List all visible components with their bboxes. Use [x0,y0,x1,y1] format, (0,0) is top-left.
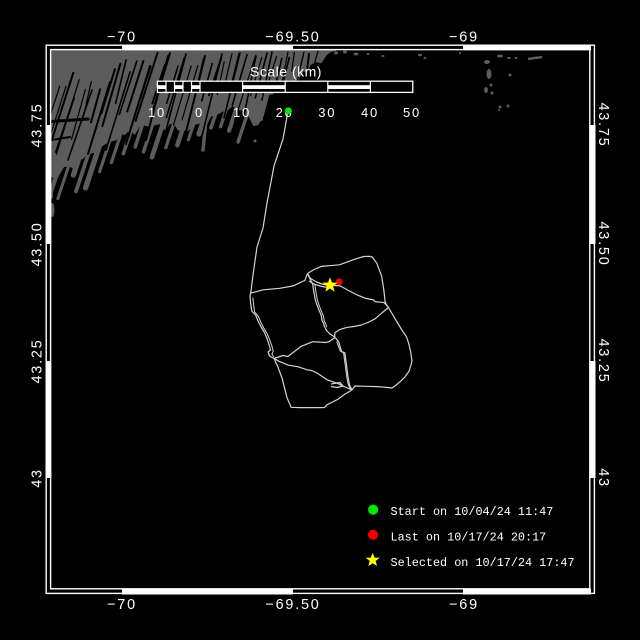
svg-text:10: 10 [233,105,251,120]
svg-text:30: 30 [318,105,336,120]
svg-text:Scale (km): Scale (km) [250,64,322,80]
svg-text:43.50: 43.50 [595,221,611,266]
svg-text:0: 0 [195,105,204,120]
svg-text:−70: −70 [107,30,137,46]
svg-text:43.75: 43.75 [595,102,611,147]
svg-text:Selected on 10/17/24 17:47: Selected on 10/17/24 17:47 [391,556,575,570]
svg-text:50: 50 [403,105,421,120]
svg-text:43.75: 43.75 [30,102,46,147]
svg-text:40: 40 [361,105,379,120]
svg-text:43.50: 43.50 [30,221,46,266]
svg-text:43: 43 [595,468,611,488]
svg-text:−69: −69 [449,30,479,46]
svg-text:43.25: 43.25 [595,338,611,383]
svg-text:10: 10 [148,105,166,120]
svg-text:43: 43 [30,468,46,488]
svg-text:−69: −69 [449,597,479,613]
svg-text:Last on 10/17/24 20:17: Last on 10/17/24 20:17 [391,531,547,545]
svg-text:−69.50: −69.50 [265,597,320,613]
svg-text:43.25: 43.25 [30,338,46,383]
svg-text:Start on 10/04/24 11:47: Start on 10/04/24 11:47 [391,505,554,519]
svg-text:−69.50: −69.50 [265,30,320,46]
svg-text:−70: −70 [107,597,137,613]
